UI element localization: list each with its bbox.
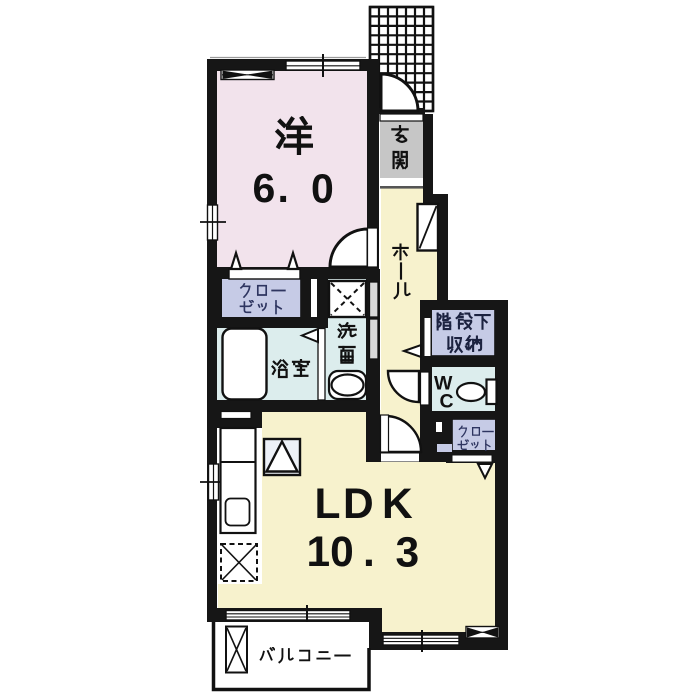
svg-text:0: 0 — [311, 166, 334, 212]
svg-text:.: . — [363, 529, 375, 576]
svg-text:6: 6 — [253, 165, 276, 211]
svg-text:3: 3 — [396, 530, 420, 577]
svg-text:10: 10 — [307, 529, 354, 576]
svg-text:C: C — [440, 391, 454, 413]
svg-text:D: D — [343, 481, 374, 528]
svg-text:L: L — [315, 481, 341, 528]
svg-text:.: . — [278, 165, 289, 211]
svg-text:K: K — [382, 481, 413, 528]
